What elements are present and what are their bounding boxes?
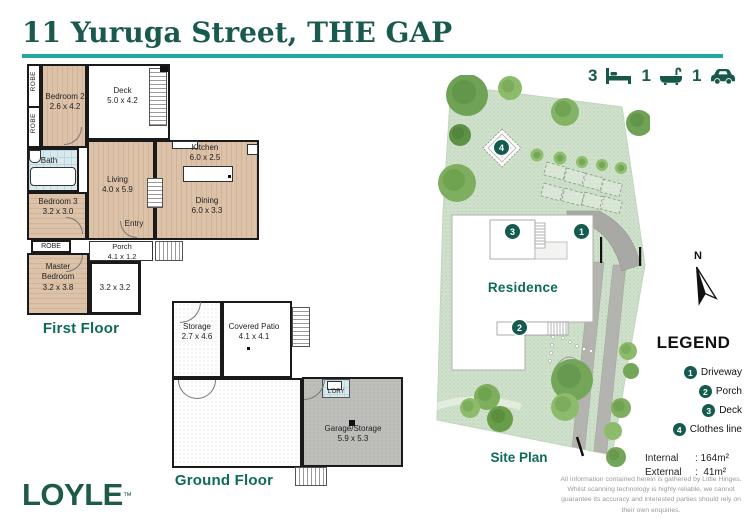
ff-robe-divider <box>29 106 39 108</box>
brand-logo-text: LOYLE <box>22 477 123 512</box>
marker-driveway: 1 <box>574 224 589 239</box>
marker-deck: 3 <box>505 224 520 239</box>
residence-deck-stair-treads <box>535 226 545 244</box>
north-arrow: N <box>682 250 724 314</box>
internal-area-value: : 164m² <box>695 453 729 464</box>
disclaimer-text: All information contained herein is gath… <box>556 475 746 516</box>
marker-clothes-line: 4 <box>494 140 509 155</box>
ff-living-label: Living 4.0 x 5.9 <box>85 175 150 196</box>
ff-store-room-label: 3.2 x 3.2 <box>92 283 138 293</box>
legend-label-1: Driveway <box>701 367 742 378</box>
brand-trademark: ™ <box>123 491 132 501</box>
gf-bottom-stairs <box>295 467 327 486</box>
legend-item-clothes-line: 4 Clothes line <box>645 423 742 436</box>
title-underline <box>22 54 723 58</box>
car-icon <box>710 68 736 85</box>
marker-porch: 2 <box>512 320 527 335</box>
site-plan-map <box>425 75 650 470</box>
gf-patio-stairs <box>292 307 310 347</box>
driveway-bollard-1 <box>600 237 602 263</box>
legend-label-4: Clothes line <box>690 424 742 435</box>
ff-bathtub <box>30 167 76 186</box>
ff-bedroom2-label: Bedroom 2 2.6 x 4.2 <box>39 92 91 113</box>
ff-bedroom3-label: Bedroom 3 3.2 x 3.0 <box>29 197 87 218</box>
ff-dining-label: Dining 6.0 x 3.3 <box>172 196 242 217</box>
ff-robe2-label: ROBE <box>30 113 37 133</box>
gf-patio-label: Covered Patio 4.1 x 4.1 <box>217 322 291 343</box>
legend-num-4: 4 <box>673 423 686 436</box>
ff-porch-label: Porch 4.1 x 1.2 <box>92 242 152 262</box>
ff-deck-label: Deck 5.0 x 4.2 <box>95 86 150 107</box>
ff-entry-label: Entry <box>116 219 152 229</box>
legend-item-driveway: 1 Driveway <box>645 366 742 379</box>
gf-laundry-label: L'DRY <box>318 389 354 397</box>
internal-area: Internal : 164m² <box>645 453 742 464</box>
ground-floor-title: Ground Floor <box>158 472 290 489</box>
residence-label: Residence <box>456 280 590 295</box>
north-label: N <box>694 250 702 262</box>
legend: LEGEND 1 Driveway 2 Porch 3 Deck 4 Cloth… <box>645 333 742 478</box>
residence-porch-stair-treads <box>548 322 566 335</box>
ff-island-dot <box>228 175 231 178</box>
legend-label-3: Deck <box>719 405 742 416</box>
floorplan-sheet: 11 Yuruga Street, THE GAP 3 1 1 <box>0 0 750 530</box>
legend-num-1: 1 <box>684 366 697 379</box>
ff-kitchen-island <box>183 166 233 182</box>
legend-title: LEGEND <box>645 333 742 353</box>
north-arrow-glyph <box>682 262 724 312</box>
internal-area-label: Internal <box>645 453 695 464</box>
site-plan-title: Site Plan <box>458 450 580 465</box>
driveway-bollard-2 <box>639 247 641 266</box>
ff-robe1-label: ROBE <box>30 71 37 91</box>
cars-count: 1 <box>692 66 701 86</box>
bath-icon <box>660 67 683 85</box>
page-title: 11 Yuruga Street, THE GAP <box>22 16 722 49</box>
ff-porch-stairs <box>155 241 183 261</box>
legend-num-2: 2 <box>699 385 712 398</box>
ff-fridge <box>247 144 258 155</box>
gf-garage-label: Garage/Storage 5.9 x 5.3 <box>313 424 393 445</box>
ff-master-label: Master Bedroom 3.2 x 3.8 <box>32 262 84 293</box>
legend-label-2: Porch <box>716 386 742 397</box>
ff-robe3-box: ROBE <box>31 240 71 253</box>
ff-robe3-label: ROBE <box>41 243 61 250</box>
ff-kitchen-label: Kitchen 6.0 x 2.5 <box>170 143 240 164</box>
brand-logo: LOYLE™ <box>22 477 132 513</box>
gf-patio-dot <box>247 347 250 350</box>
ff-deck-corner-mark <box>160 66 168 72</box>
legend-item-porch: 2 Porch <box>645 385 742 398</box>
ff-deck-stairs <box>149 68 167 126</box>
ff-bath-label: Bath <box>36 156 62 166</box>
legend-num-3: 3 <box>702 404 715 417</box>
legend-item-deck: 3 Deck <box>645 404 742 417</box>
first-floor-title: First Floor <box>25 320 137 337</box>
